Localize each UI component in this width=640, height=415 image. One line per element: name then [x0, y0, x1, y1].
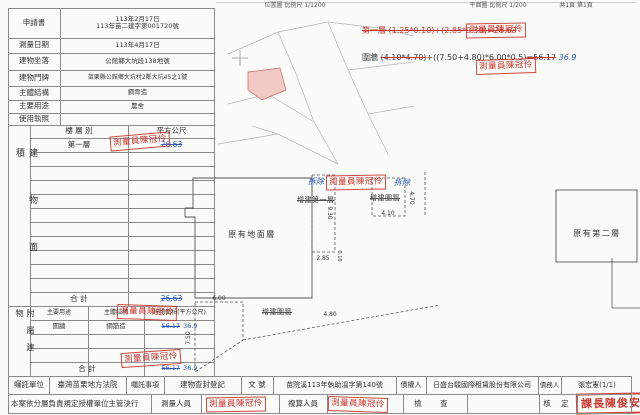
floor-total-label: 合 計 — [30, 292, 128, 306]
site-label: 建物坐落 — [8, 53, 60, 70]
wall-extension-label: 增建圍牆 — [370, 193, 400, 203]
surveyor-stamp: 測量員陳冠伶 — [476, 58, 536, 75]
ground-floor-label: 原有地面層 — [212, 229, 292, 240]
plan-title: 平面圖 比例尺 1/200 — [448, 3, 548, 10]
wall-trapezoid-outline — [195, 302, 243, 372]
survey-date-value: 113年4月17日 — [60, 38, 215, 53]
demolish-note-left: 拆除 — [308, 176, 324, 187]
approve-label: 核 定 — [539, 395, 577, 413]
annex-side-label: 附屬建物 — [14, 309, 36, 375]
footer-row-signatures: 本案依分層負責規定授權單位主管決行 測量人員 複算人員 檢 查 核 定 — [8, 395, 632, 414]
doc-no-label: 文 號 — [241, 377, 273, 394]
grid-line — [128, 125, 129, 306]
building-area-side-label: 建物面積 — [13, 148, 39, 308]
grid-line — [467, 395, 468, 413]
surveyor-stamp: 測量員陳冠伶 — [117, 304, 177, 321]
debtor-label: 債務人 — [538, 377, 561, 394]
demolish-note-right: 拆除 — [394, 177, 410, 188]
dim-trap-right: 4.80 — [323, 311, 337, 318]
use-value: 農舍 — [60, 100, 215, 113]
dim-strip-width: 2.85 — [316, 255, 330, 262]
entrust-item-value: 建物查封登記 — [164, 377, 241, 394]
annex-row-use: 圍牆 — [30, 320, 88, 334]
site-value: 公館鄉大坑段138地號 — [60, 53, 215, 70]
partial-structure-line — [612, 258, 640, 308]
check-label: 檢 查 — [403, 395, 467, 413]
subject-parcel — [248, 68, 286, 100]
survey-document: 位置圖 比例尺 1/1200 平面圖 比例尺 1/200 共1頁 第1頁 — [0, 0, 640, 415]
survey-date-label: 測量日期 — [8, 38, 60, 53]
surveyor-role-label: 測量人員 — [151, 395, 201, 413]
annex-row-structure: 鋼筋造 — [88, 320, 144, 334]
creditor-label: 債權人 — [396, 377, 426, 394]
dim-sliver: 0.10 — [336, 250, 342, 261]
footer-row-entrust: 囑託單位 臺灣苗栗地方法院 囑託事項 建物查封登記 文 號 苗院溪113年執助溫… — [8, 376, 632, 395]
grid-line — [201, 395, 202, 413]
application-label: 申請書 — [8, 8, 60, 38]
calc-line-2-prefix: 圍牆 — [362, 53, 381, 62]
wall-extension-bottom-label: 增建圍牆 — [262, 307, 292, 317]
surveyor-stamp: 測量員陳冠伶 — [466, 22, 526, 38]
annex-use-header: 主要用途 — [30, 306, 88, 320]
plan-dimensions: 9.30 2.85 0.10 4.10 4.70 6.00 7.50 4.80 — [185, 191, 415, 344]
reviewer-role-label: 複算人員 — [279, 395, 327, 413]
parcel-lines — [218, 22, 414, 164]
dim-wall-width: 4.10 — [381, 210, 395, 217]
grid-line — [30, 166, 215, 167]
structure-value: 鋼骨造 — [60, 86, 215, 100]
location-map — [218, 14, 416, 166]
grid-line — [327, 395, 328, 413]
dim-trap-top: 6.00 — [212, 295, 226, 302]
address-label: 建物門牌 — [8, 70, 60, 86]
calc-line-2-revised: 36.9 — [559, 53, 577, 62]
address-value: 苗栗縣公館鄉大坑村2鄰大坑45之1號 — [60, 70, 215, 86]
second-floor-label: 原有第二層 — [558, 228, 636, 239]
structure-label: 主體結構 — [8, 86, 60, 100]
doc-no-value: 苗院溪113年執助溫字第140號 — [273, 377, 396, 394]
entrust-item-label: 囑託事項 — [126, 377, 164, 394]
application-number: 113年苗二建字第001720號 — [96, 23, 179, 30]
second-floor-outline — [556, 190, 637, 262]
calc-line-2: 圍牆 (4.10*4.70)+((7.50+4.80)*6.00*0.5)=56… — [362, 52, 576, 63]
floor-plan: 9.30 2.85 0.10 4.10 4.70 6.00 7.50 4.80 — [178, 168, 640, 385]
grid-line — [30, 152, 215, 153]
dim-wall-height: 4.70 — [408, 191, 415, 205]
entrust-unit-value: 臺灣苗栗地方法院 — [49, 377, 126, 394]
license-label: 使用執照 — [8, 113, 60, 125]
entrust-unit-label: 囑託單位 — [9, 377, 49, 394]
first-floor-extension-label: 增建第一層 — [297, 195, 335, 205]
location-map-title: 位置圖 比例尺 1/1200 — [240, 3, 350, 10]
dim-strip-height: 9.30 — [326, 206, 333, 220]
calc-line-2-struck1: (4.10*4.70) — [381, 53, 427, 62]
debtor-value: 張宏憲(1/1) — [561, 377, 633, 394]
dim-trap-left: 7.50 — [185, 331, 192, 345]
north-cross-icon — [232, 50, 248, 66]
page-number: 共1頁 第1頁 — [536, 3, 616, 10]
surveyor-stamp: 測量員陳冠伶 — [326, 174, 386, 190]
authorization-statement: 本案依分層負責規定授權單位主管決行 — [11, 395, 151, 413]
license-value — [60, 113, 215, 125]
creditor-value: 日盛台駿國際租賃股份有限公司 — [426, 377, 538, 394]
grid-line — [577, 395, 578, 413]
use-label: 主要用途 — [8, 100, 60, 113]
application-value: 113年2月17日 113年苗二建字第001720號 — [60, 8, 215, 38]
